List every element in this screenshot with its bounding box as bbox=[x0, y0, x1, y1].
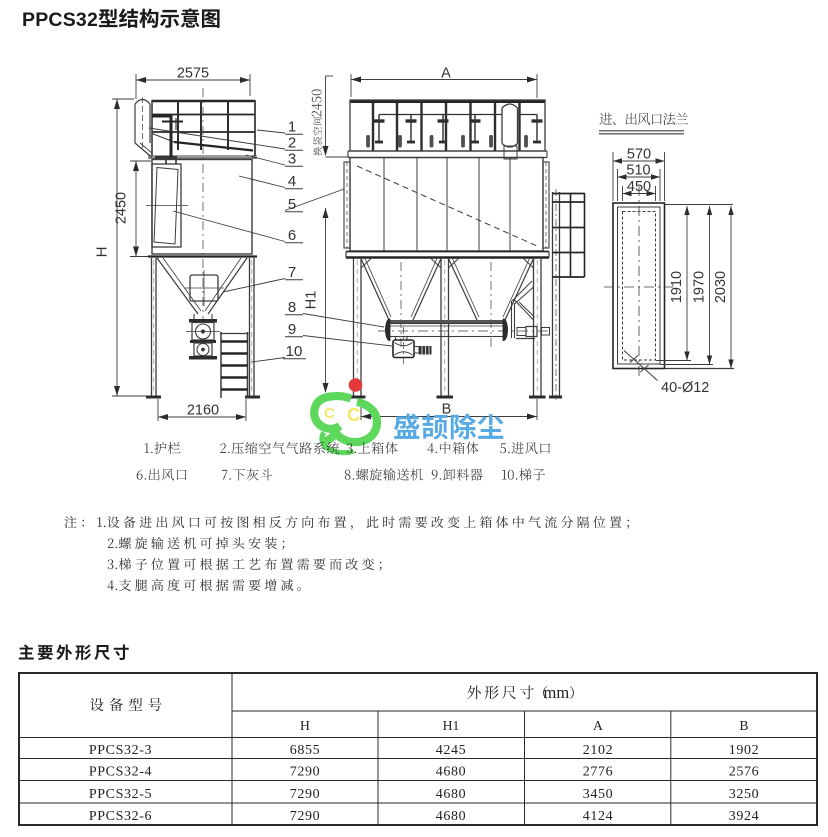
svg-text:2030: 2030 bbox=[713, 271, 729, 303]
svg-text:4680: 4680 bbox=[436, 809, 466, 824]
svg-text:1970: 1970 bbox=[692, 271, 708, 303]
svg-text:4124: 4124 bbox=[583, 809, 613, 824]
svg-text:4680: 4680 bbox=[436, 765, 466, 780]
svg-text:3924: 3924 bbox=[729, 809, 759, 824]
svg-text:7290: 7290 bbox=[290, 765, 320, 780]
svg-text:C: C bbox=[324, 405, 335, 422]
svg-text:5: 5 bbox=[288, 196, 296, 213]
svg-text:PPCS32-3: PPCS32-3 bbox=[89, 743, 152, 758]
svg-text:40-Ø12: 40-Ø12 bbox=[661, 380, 709, 396]
svg-text:PPCS32-4: PPCS32-4 bbox=[89, 765, 152, 780]
svg-text:H1: H1 bbox=[304, 291, 320, 310]
svg-text:4: 4 bbox=[288, 173, 296, 190]
svg-text:PPCS32-5: PPCS32-5 bbox=[89, 787, 152, 802]
svg-text:7290: 7290 bbox=[290, 809, 320, 824]
svg-text:1: 1 bbox=[288, 119, 296, 136]
svg-text:A: A bbox=[593, 718, 603, 733]
svg-text:PPCS32: PPCS32 bbox=[22, 9, 98, 31]
svg-text:B: B bbox=[739, 718, 748, 733]
svg-text:6: 6 bbox=[288, 227, 296, 244]
svg-text:3: 3 bbox=[288, 151, 296, 168]
svg-text:7: 7 bbox=[288, 264, 296, 281]
svg-text:9: 9 bbox=[288, 321, 296, 338]
svg-text:3450: 3450 bbox=[583, 787, 613, 802]
svg-text:PPCS32-6: PPCS32-6 bbox=[89, 809, 152, 824]
svg-text:6855: 6855 bbox=[290, 743, 320, 758]
svg-text:2: 2 bbox=[288, 135, 296, 152]
svg-text:2450: 2450 bbox=[114, 192, 130, 224]
svg-text:8: 8 bbox=[288, 299, 296, 316]
svg-text:4245: 4245 bbox=[436, 743, 466, 758]
svg-text:570: 570 bbox=[627, 147, 651, 163]
svg-text:2776: 2776 bbox=[583, 765, 613, 780]
svg-text:H: H bbox=[94, 247, 111, 258]
svg-text:mm: mm bbox=[544, 683, 570, 702]
svg-text:H1: H1 bbox=[443, 718, 460, 733]
svg-text:A: A bbox=[441, 66, 451, 82]
svg-text:2160: 2160 bbox=[187, 403, 219, 419]
svg-text:C: C bbox=[347, 404, 360, 425]
svg-text:2102: 2102 bbox=[583, 743, 613, 758]
svg-text:H: H bbox=[300, 718, 310, 733]
svg-text:4680: 4680 bbox=[436, 787, 466, 802]
svg-text:2576: 2576 bbox=[729, 765, 759, 780]
svg-text:2575: 2575 bbox=[177, 66, 209, 82]
svg-text:3250: 3250 bbox=[729, 787, 759, 802]
svg-text:1902: 1902 bbox=[729, 743, 759, 758]
svg-text:10: 10 bbox=[286, 343, 303, 360]
svg-text:7290: 7290 bbox=[290, 787, 320, 802]
svg-text:510: 510 bbox=[626, 163, 650, 179]
svg-text:1910: 1910 bbox=[669, 271, 685, 303]
